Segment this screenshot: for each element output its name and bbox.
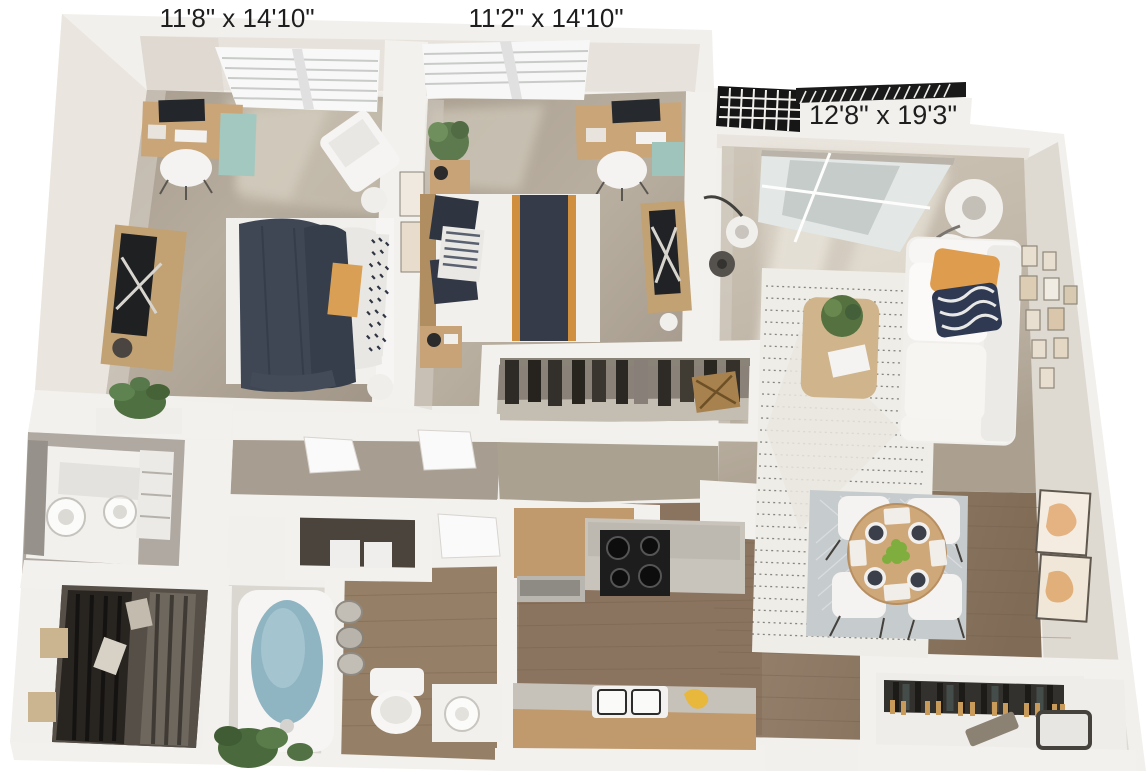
svg-text:11'8" x 14'10": 11'8" x 14'10": [159, 3, 314, 33]
svg-text:12'8" x 19'3": 12'8" x 19'3": [809, 100, 957, 130]
svg-text:11'2" x 14'10": 11'2" x 14'10": [468, 3, 623, 33]
